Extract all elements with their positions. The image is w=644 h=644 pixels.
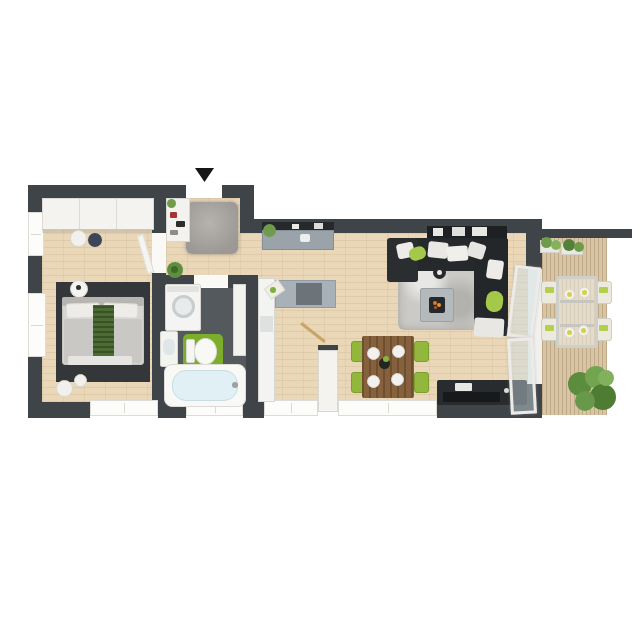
- partition-wall: [318, 350, 338, 412]
- planter-green-4: [574, 242, 584, 252]
- sofa-pillow-3: [447, 245, 469, 261]
- floor-plan-3d-render: [0, 0, 644, 644]
- wall-bottom-bath-kitchen: [243, 402, 264, 418]
- glass-door-lower: [507, 337, 537, 414]
- console-slab: [443, 392, 500, 402]
- food-3: [567, 330, 572, 335]
- sideboard-item-light: [314, 223, 323, 229]
- window-bottom-bedroom: [90, 400, 158, 416]
- sofa-throw: [474, 317, 505, 338]
- wardrobe-divider-1: [79, 199, 80, 229]
- entry-rug: [186, 202, 238, 254]
- pouf-round-navy: [88, 233, 102, 247]
- chair-napkin-3: [599, 287, 608, 293]
- shelf-plant: [167, 199, 176, 208]
- wardrobe-divider-2: [116, 199, 117, 229]
- bush-5: [598, 370, 614, 386]
- media-device-2: [452, 227, 465, 236]
- bath-cabinet: [233, 284, 246, 356]
- window-bottom-dining: [338, 400, 437, 416]
- cutting-board-greens: [270, 287, 276, 293]
- wardrobe: [42, 198, 154, 230]
- dining-plate-4: [391, 373, 404, 386]
- centerpiece-green: [383, 356, 389, 362]
- bathtub-inner: [172, 370, 238, 401]
- pouf-round-white: [70, 230, 87, 247]
- console-device: [455, 383, 472, 391]
- sideboard-item-white: [292, 224, 299, 229]
- dining-plate-3: [367, 375, 380, 388]
- window-bottom-kitchen: [264, 400, 318, 416]
- sofa-pillow-5: [486, 259, 504, 280]
- bed-foot-throw: [68, 356, 132, 365]
- washer-door: [172, 295, 195, 318]
- sofa-pillow-2: [427, 241, 449, 259]
- outdoor-table-shelf-1: [560, 300, 594, 303]
- pouf-foot-large: [56, 380, 73, 397]
- food-2: [582, 290, 587, 295]
- nightstand-decor: [76, 285, 81, 290]
- food-4: [581, 328, 586, 333]
- hall-plant-core: [171, 266, 178, 273]
- wall-bedroom-hall-upper: [152, 196, 166, 234]
- kitchen-oven: [260, 316, 273, 332]
- side-table-candle: [437, 270, 442, 275]
- entrance-arrow: [195, 168, 214, 182]
- wall-bathroom-right: [246, 275, 258, 402]
- bush-4: [575, 391, 595, 411]
- pouf-foot-small: [74, 374, 87, 387]
- media-device-3: [472, 227, 487, 236]
- console-knob: [504, 388, 509, 393]
- bedroom-door-opening: [152, 233, 166, 273]
- dining-chair-3: [414, 341, 429, 362]
- tub-faucet: [232, 382, 238, 388]
- wardrobe-shadow: [42, 229, 154, 233]
- media-device-1: [433, 228, 443, 236]
- dining-plate-1: [367, 347, 380, 360]
- chair-napkin-4: [599, 325, 608, 331]
- shelf-item-gray: [170, 230, 178, 235]
- washer-panel: [167, 286, 199, 292]
- outdoor-table: [556, 276, 598, 348]
- fire-ember-3: [434, 306, 437, 309]
- window-left-lower: [28, 293, 46, 357]
- shelf-item-dark: [176, 221, 185, 227]
- wall-bottom-bedroom: [28, 402, 90, 418]
- dining-chair-4: [414, 372, 429, 393]
- food-1: [567, 292, 572, 297]
- sideboard-plant: [263, 224, 276, 237]
- chair-napkin-1: [545, 287, 554, 293]
- planter-green-2: [551, 240, 561, 250]
- toilet-bowl: [194, 338, 217, 365]
- bath-sink-basin: [163, 339, 175, 355]
- bed-green-runner: [93, 305, 114, 363]
- kitchen-cooktop: [296, 283, 322, 305]
- dining-plate-2: [392, 345, 405, 358]
- outdoor-table-shelf-2: [560, 324, 594, 327]
- chair-napkin-2: [545, 325, 554, 331]
- shelf-item-red: [170, 212, 177, 218]
- sideboard-kettle: [300, 234, 310, 242]
- wall-left-mid: [28, 255, 42, 295]
- fire-ember-2: [437, 303, 441, 307]
